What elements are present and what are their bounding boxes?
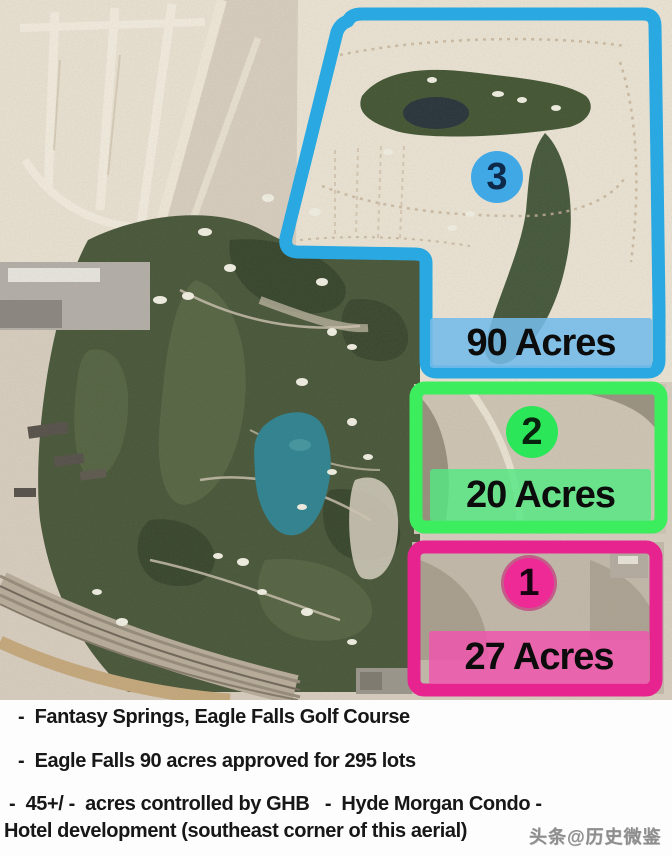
page: 3 2 1 90 Acres 20 Acres 27 Acres - Fanta…	[0, 0, 672, 856]
parcel-1-acres-label: 27 Acres	[429, 631, 649, 684]
parcel-1-badge: 1	[504, 558, 554, 608]
aerial-map: 3 2 1 90 Acres 20 Acres 27 Acres	[0, 0, 672, 700]
parcel-2-acres-label: 20 Acres	[430, 469, 651, 521]
note-line-4: Hotel development (southeast corner of t…	[4, 820, 467, 843]
note-line-3: - 45+/ - acres controlled by GHB - Hyde …	[9, 793, 542, 816]
parcel-3-badge: 3	[471, 151, 523, 203]
watermark: 头条@历史微鉴	[529, 823, 662, 849]
note-line-1: - Fantasy Springs, Eagle Falls Golf Cour…	[18, 706, 410, 729]
note-line-2: - Eagle Falls 90 acres approved for 295 …	[18, 750, 416, 773]
parcel-3-acres-label: 90 Acres	[430, 318, 652, 368]
parcel-2-badge: 2	[506, 406, 558, 458]
